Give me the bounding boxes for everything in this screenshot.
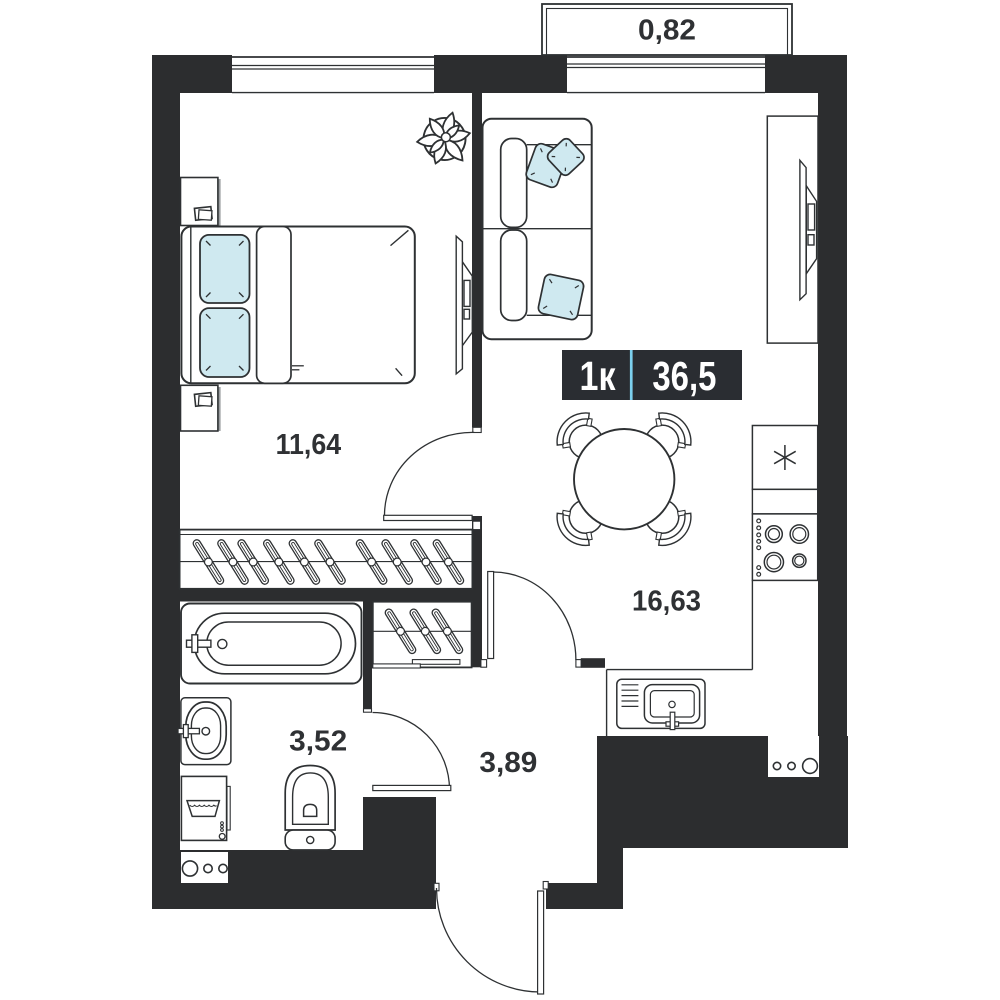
svg-text:0,82: 0,82: [638, 15, 696, 47]
svg-text:3,89: 3,89: [479, 747, 537, 779]
svg-text:11,64: 11,64: [276, 429, 342, 461]
svg-text:16,63: 16,63: [632, 586, 701, 618]
svg-text:1к: 1к: [580, 353, 616, 399]
svg-text:3,52: 3,52: [289, 726, 347, 758]
svg-text:36,5: 36,5: [652, 353, 716, 399]
